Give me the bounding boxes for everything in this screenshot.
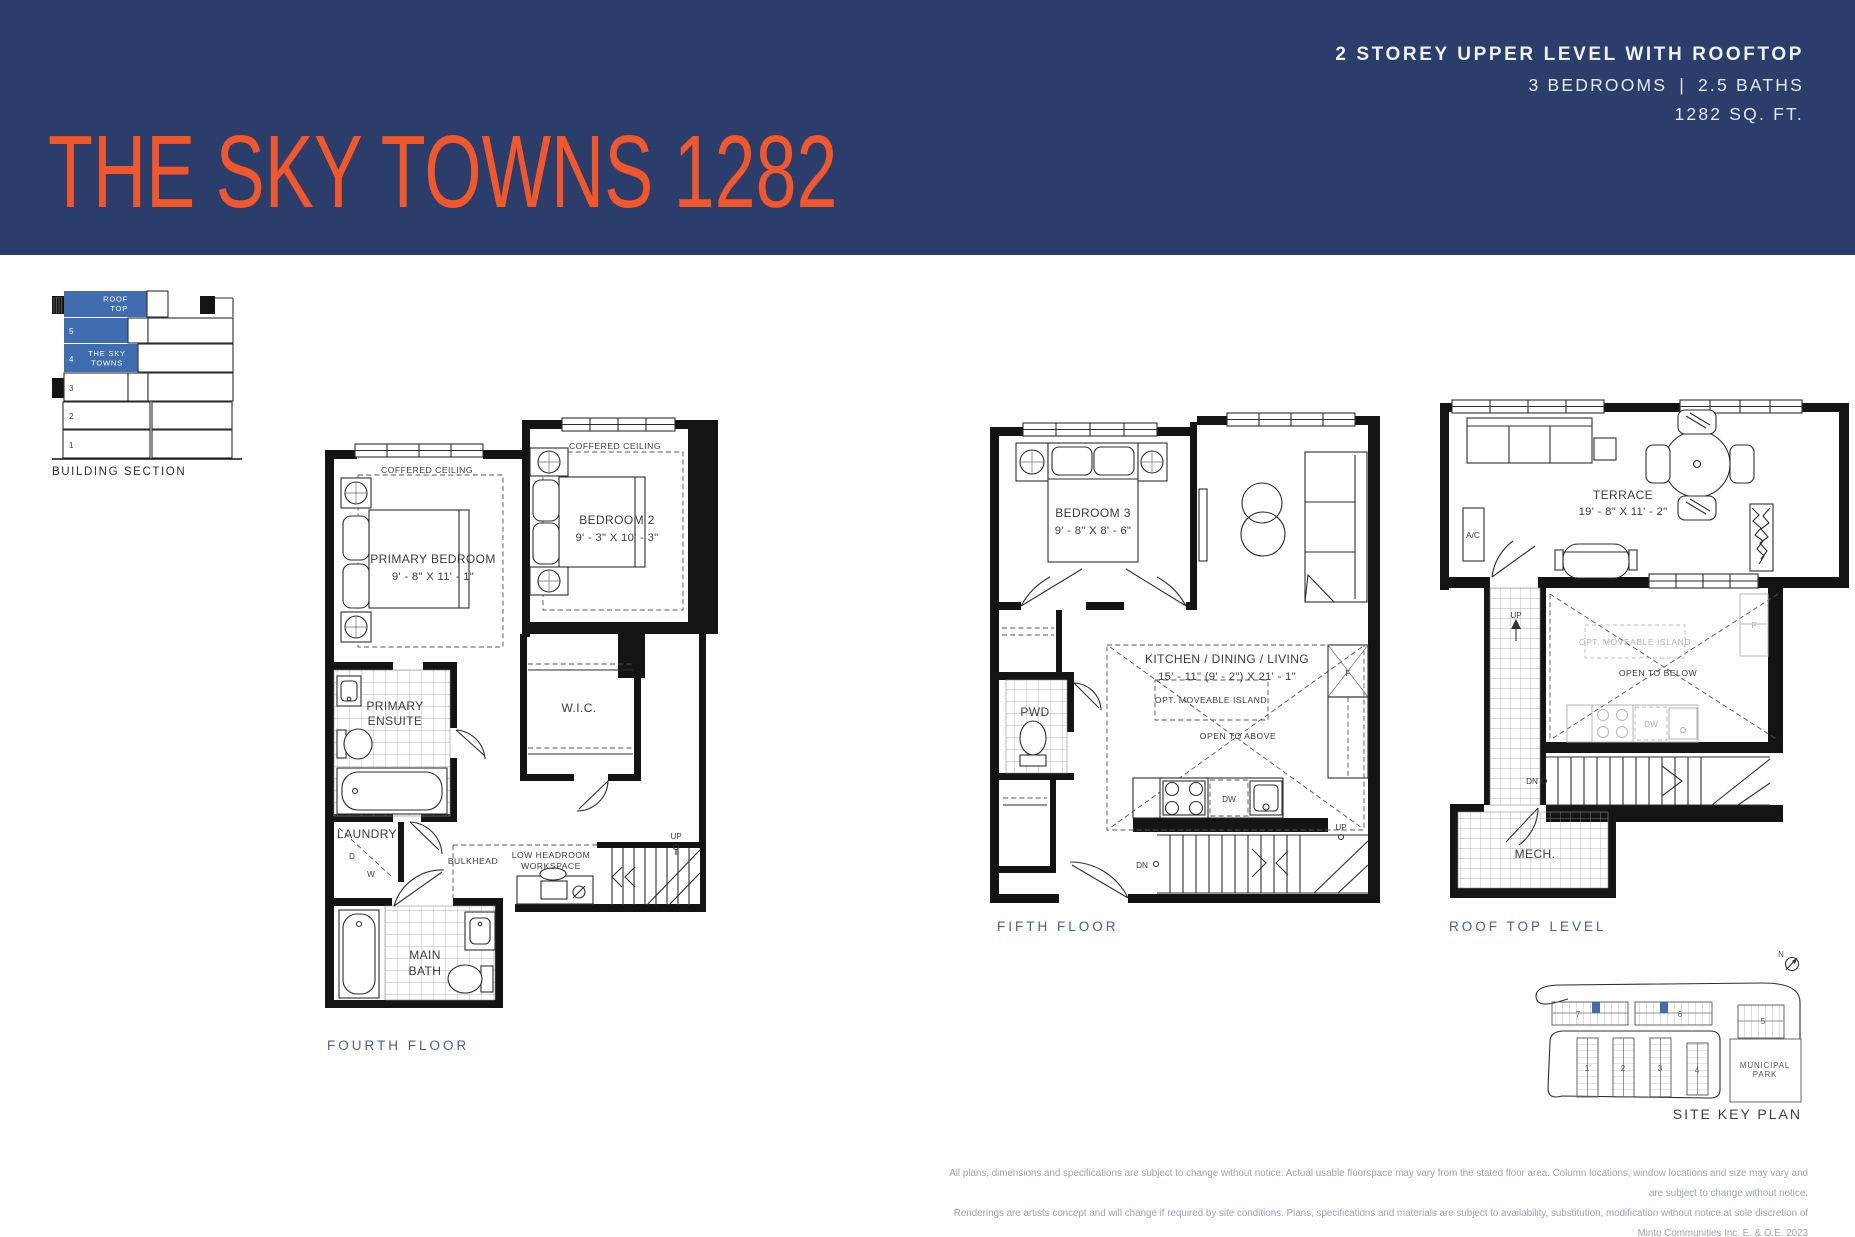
toilet-icon bbox=[337, 729, 372, 759]
window-icon bbox=[1227, 413, 1355, 426]
planter-icon bbox=[1750, 504, 1773, 571]
bathtub-icon bbox=[337, 768, 447, 814]
wic-room bbox=[528, 664, 633, 811]
bedroom2-label: BEDROOM 2 bbox=[579, 513, 655, 527]
header: THE SKY TOWNS 1282 2 STOREY UPPER LEVEL … bbox=[0, 0, 1855, 255]
site-key-caption: SITE KEY PLAN bbox=[1596, 1106, 1802, 1122]
stairs-icon bbox=[1154, 835, 1369, 894]
coffered-ceiling-label: COFFERED CEILING bbox=[569, 441, 661, 451]
moveable-island-label: OPT. MOVEABLE ISLAND bbox=[1155, 695, 1267, 705]
bathtub-icon bbox=[339, 910, 379, 998]
kitchen-dining-living-dims: 15' - 11" (9' - 2") X 21' - 1" bbox=[1158, 671, 1296, 683]
section-floor2-label: 2 bbox=[69, 412, 74, 421]
unit-specs: 2 STOREY UPPER LEVEL WITH ROOFTOP 3 BEDR… bbox=[1335, 44, 1804, 125]
building-5-label: 5 bbox=[1761, 1017, 1766, 1026]
laundry-label: LAUNDRY bbox=[337, 827, 397, 841]
door-arc bbox=[577, 781, 608, 811]
door-arc bbox=[1492, 541, 1535, 577]
ensuite-label-line2: ENSUITE bbox=[368, 714, 423, 728]
nightstand-icon bbox=[530, 567, 568, 595]
door-arc bbox=[456, 730, 485, 759]
site-building-7 bbox=[1552, 1002, 1628, 1025]
mech-label: MECH. bbox=[1515, 847, 1556, 861]
wic-label: W.I.C. bbox=[561, 701, 596, 715]
main-bath-label-line1: MAIN bbox=[409, 948, 441, 962]
disclaimer: All plans, dimensions and specifications… bbox=[948, 1164, 1808, 1237]
spec-bedrooms: 3 BEDROOMS bbox=[1529, 75, 1668, 95]
window-icon bbox=[1023, 423, 1157, 436]
washer-label: W bbox=[367, 870, 375, 879]
dn-label: DN bbox=[1526, 777, 1538, 786]
north-label: N bbox=[1778, 950, 1784, 959]
bbq-icon bbox=[1555, 544, 1637, 578]
building-2-label: 2 bbox=[1621, 1064, 1626, 1073]
low-headroom-label-line1: LOW HEADROOM bbox=[512, 850, 591, 860]
up-label: UP bbox=[1335, 823, 1347, 832]
building-6-label: 6 bbox=[1678, 1010, 1683, 1019]
up-label: UP bbox=[670, 832, 682, 841]
stairs-icon bbox=[1490, 541, 1540, 845]
section-rooftop-label-line1: ROOF bbox=[103, 295, 128, 304]
page-title: THE SKY TOWNS 1282 bbox=[48, 114, 837, 232]
section-floor4-name-line2: TOWNS bbox=[91, 359, 123, 368]
ensuite-label-line1: PRIMARY bbox=[366, 699, 423, 713]
closet bbox=[1003, 798, 1128, 898]
fridge-label: F bbox=[1345, 669, 1350, 678]
terrace-label: TERRACE bbox=[1593, 488, 1653, 502]
main-bath-label-line2: BATH bbox=[409, 964, 442, 978]
bedroom3-label: BEDROOM 3 bbox=[1055, 506, 1131, 520]
fourth-floor-caption: FOURTH FLOOR bbox=[327, 1038, 469, 1053]
terrace-dims: 19' - 8" X 11' - 2" bbox=[1579, 506, 1668, 518]
disclaimer-line2: Renderings are artists concept and will … bbox=[948, 1204, 1808, 1237]
nightstand-icon bbox=[530, 448, 568, 476]
kitchen-dining-living-label: KITCHEN / DINING / LIVING bbox=[1145, 652, 1309, 666]
section-floor5-label: 5 bbox=[69, 327, 74, 336]
bedroom2-dims: 9' - 3" X 10' - 3" bbox=[575, 532, 658, 544]
dn-label: DN bbox=[1136, 861, 1148, 870]
section-rooftop-label-line2: TOP bbox=[110, 304, 128, 313]
bed-icon bbox=[1048, 443, 1138, 562]
toilet-icon bbox=[1020, 721, 1046, 766]
dishwasher-ghost-label: DW bbox=[1644, 720, 1658, 729]
building-1-label: 1 bbox=[1585, 1064, 1590, 1073]
spec-baths: 2.5 BATHS bbox=[1698, 75, 1804, 95]
window-icon bbox=[1649, 574, 1758, 588]
municipal-park-label-line2: PARK bbox=[1753, 1070, 1777, 1079]
open-to-below-label: OPEN TO BELOW bbox=[1619, 668, 1698, 678]
fifth-floor-plan: BEDROOM 3 9' - 8" X 8' - 6" KITCHEN / DI… bbox=[990, 413, 1392, 905]
up-label: UP bbox=[1510, 611, 1522, 620]
linen-shelf bbox=[1002, 628, 1054, 635]
door-arc bbox=[1021, 569, 1186, 606]
building-3-label: 3 bbox=[1658, 1064, 1663, 1073]
door-arc bbox=[1070, 862, 1128, 898]
spec-separator: | bbox=[1679, 75, 1686, 95]
bulkhead-label: BULKHEAD bbox=[448, 856, 498, 866]
section-floor4-num: 4 bbox=[69, 355, 74, 364]
ensuite-room bbox=[334, 670, 485, 816]
roof-top-plan: TERRACE 19' - 8" X 11' - 2" A/C UP OPT. … bbox=[1440, 398, 1855, 933]
tv-icon bbox=[1199, 489, 1207, 561]
desk-icon bbox=[517, 868, 593, 904]
low-headroom-label-line2: WORKSPACE bbox=[521, 861, 581, 871]
disclaimer-line1: All plans, dimensions and specifications… bbox=[948, 1164, 1808, 1204]
dishwasher-label: DW bbox=[1222, 795, 1236, 804]
building-section-caption: BUILDING SECTION bbox=[52, 466, 186, 478]
fridge-ghost-label: F bbox=[1751, 621, 1756, 630]
fridge-icon bbox=[1328, 645, 1368, 778]
dryer-label: D bbox=[349, 852, 355, 861]
coffered-ceiling-label: COFFERED CEILING bbox=[381, 465, 473, 475]
nightstand-icon bbox=[1016, 443, 1048, 481]
sink-icon bbox=[337, 676, 361, 706]
site-building-6 bbox=[1635, 1002, 1712, 1025]
municipal-park-label-line1: MUNICIPAL bbox=[1740, 1061, 1790, 1070]
sink-icon bbox=[465, 912, 495, 950]
building-section-shapes bbox=[52, 291, 242, 459]
building-7-label: 7 bbox=[1576, 1010, 1581, 1019]
building-4-label: 4 bbox=[1695, 1066, 1700, 1075]
nightstand-icon bbox=[1138, 443, 1167, 481]
door-arc bbox=[1074, 683, 1101, 710]
floorplan-sheet: THE SKY TOWNS 1282 2 STOREY UPPER LEVEL … bbox=[0, 0, 1855, 1237]
roof-top-caption: ROOF TOP LEVEL bbox=[1449, 919, 1607, 934]
moveable-island-ghost-label: OPT. MOVEABLE ISLAND bbox=[1579, 637, 1691, 647]
spec-area: 1282 SQ. FT. bbox=[1335, 104, 1804, 125]
section-floor1-label: 1 bbox=[69, 441, 74, 450]
stairs-icon bbox=[1542, 757, 1771, 805]
stove-icon bbox=[1160, 778, 1208, 818]
window-icon bbox=[1452, 400, 1604, 413]
spec-storey: 2 STOREY UPPER LEVEL WITH ROOFTOP bbox=[1335, 44, 1804, 66]
section-floor4-name-line1: THE SKY bbox=[88, 349, 126, 358]
fifth-floor-caption: FIFTH FLOOR bbox=[997, 919, 1119, 934]
ac-label: A/C bbox=[1466, 531, 1480, 540]
stairs-icon bbox=[612, 845, 700, 906]
open-to-above-label: OPEN TO ABOVE bbox=[1200, 731, 1276, 741]
building-section-diagram: ROOF TOP 5 4 THE SKY TOWNS 3 2 1 bbox=[50, 288, 250, 468]
primary-bedroom-dims: 9' - 8" X 11' - 1" bbox=[392, 571, 474, 583]
window-icon bbox=[562, 418, 675, 431]
site-key-plan: N 7 6 5 1 2 3 4 MUNICIPAL PARK bbox=[1520, 940, 1855, 1130]
sofa-icon bbox=[1305, 452, 1367, 602]
door-arc bbox=[410, 822, 442, 854]
kitchen-sink-icon bbox=[1250, 781, 1282, 815]
window-icon bbox=[355, 444, 483, 457]
compass-icon bbox=[1786, 958, 1799, 971]
fourth-floor-plan: COFFERED CEILING PRIMARY BEDROOM 9' - 8"… bbox=[325, 418, 720, 1010]
nightstand-icon bbox=[341, 612, 371, 642]
outdoor-sofa-icon bbox=[1467, 418, 1616, 463]
kitchen-counter bbox=[1133, 778, 1283, 818]
nightstand-icon bbox=[341, 478, 371, 508]
pwd-room bbox=[1006, 680, 1101, 773]
bedroom3-dims: 9' - 8" X 8' - 6" bbox=[1055, 525, 1131, 537]
pwd-label: PWD bbox=[1020, 705, 1049, 719]
armchair-icon bbox=[1241, 483, 1285, 556]
main-bath-room bbox=[339, 870, 495, 1000]
section-floor3-label: 3 bbox=[69, 384, 74, 393]
spec-bed-bath: 3 BEDROOMS|2.5 BATHS bbox=[1335, 75, 1804, 96]
primary-bedroom-label: PRIMARY BEDROOM bbox=[370, 552, 496, 566]
dining-table-icon bbox=[1646, 410, 1754, 520]
toilet-icon bbox=[448, 965, 493, 993]
